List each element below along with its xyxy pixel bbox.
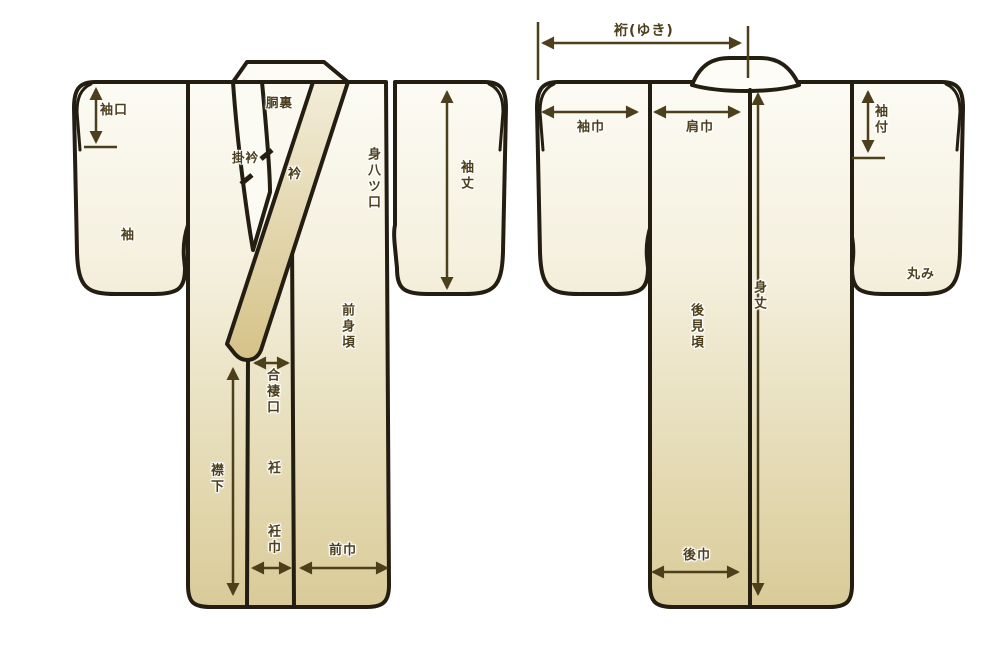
label-sodeguchi: 袖口 (100, 104, 128, 119)
front-right-sleeve-shape (394, 82, 506, 294)
kimono-measurement-diagram: 袖口 袖 胴裏 掛衿 衿 身八ツ口 袖丈 前身頃 合褄口 衽 襟下 衽巾 前巾 … (0, 0, 1000, 671)
label-okumihaba: 衽巾 (264, 524, 279, 556)
label-mitake: 身丈 (750, 280, 765, 312)
label-miyatsuguchi: 身八ツ口 (364, 147, 379, 211)
front-okumi-left-seam (247, 356, 248, 606)
label-doura: 胴裏 (266, 96, 293, 110)
label-yuki: 裄(ゆき) (614, 23, 674, 39)
kimono-diagram-canvas (0, 0, 1000, 671)
label-sode: 袖 (121, 229, 135, 244)
label-sodetsuke: 袖付 (871, 104, 886, 136)
back-right-sleeve-shape (849, 82, 963, 294)
back-kimono (537, 58, 963, 607)
label-ushirohaba: 後巾 (683, 549, 711, 564)
front-collar-top-band (233, 62, 348, 82)
back-collar-shape (692, 58, 799, 91)
label-sodehaba: 袖巾 (577, 121, 605, 136)
label-eri: 衿 (288, 168, 302, 183)
label-katahaba: 肩巾 (686, 121, 714, 136)
label-maemigoro: 前身頃 (338, 303, 353, 351)
label-erishita: 襟下 (207, 463, 222, 495)
front-kimono (74, 62, 506, 607)
label-maehaba: 前巾 (329, 544, 357, 559)
front-okumi-right-seam (292, 236, 294, 606)
label-aizumaguchi: 合褄口 (263, 368, 278, 416)
label-sodetake: 袖丈 (457, 160, 472, 192)
back-left-sleeve-shape (537, 82, 651, 294)
label-okumi: 衽 (268, 462, 282, 477)
label-ushiromigoro: 後見頃 (687, 303, 702, 351)
label-marumi: 丸み (907, 268, 935, 283)
front-left-sleeve-shape (74, 82, 188, 294)
label-kakeeri: 掛衿 (232, 151, 259, 165)
